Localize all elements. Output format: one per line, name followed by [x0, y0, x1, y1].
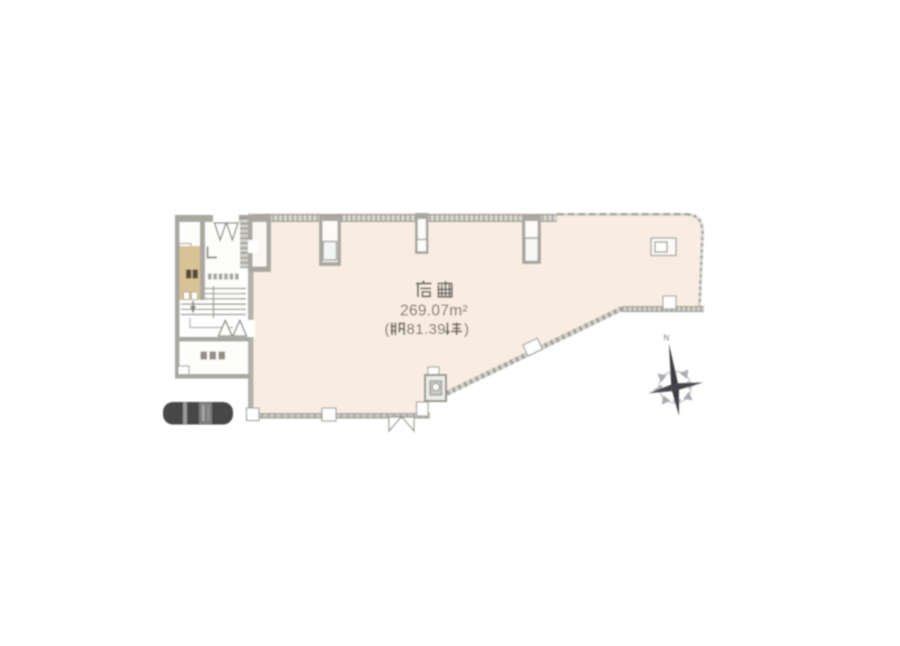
svg-text:): ): [464, 321, 469, 338]
svg-text:81.39: 81.39: [407, 321, 447, 338]
svg-text:N: N: [664, 334, 670, 343]
svg-text:(: (: [385, 321, 390, 338]
svg-text:269.07m²: 269.07m²: [400, 303, 468, 320]
